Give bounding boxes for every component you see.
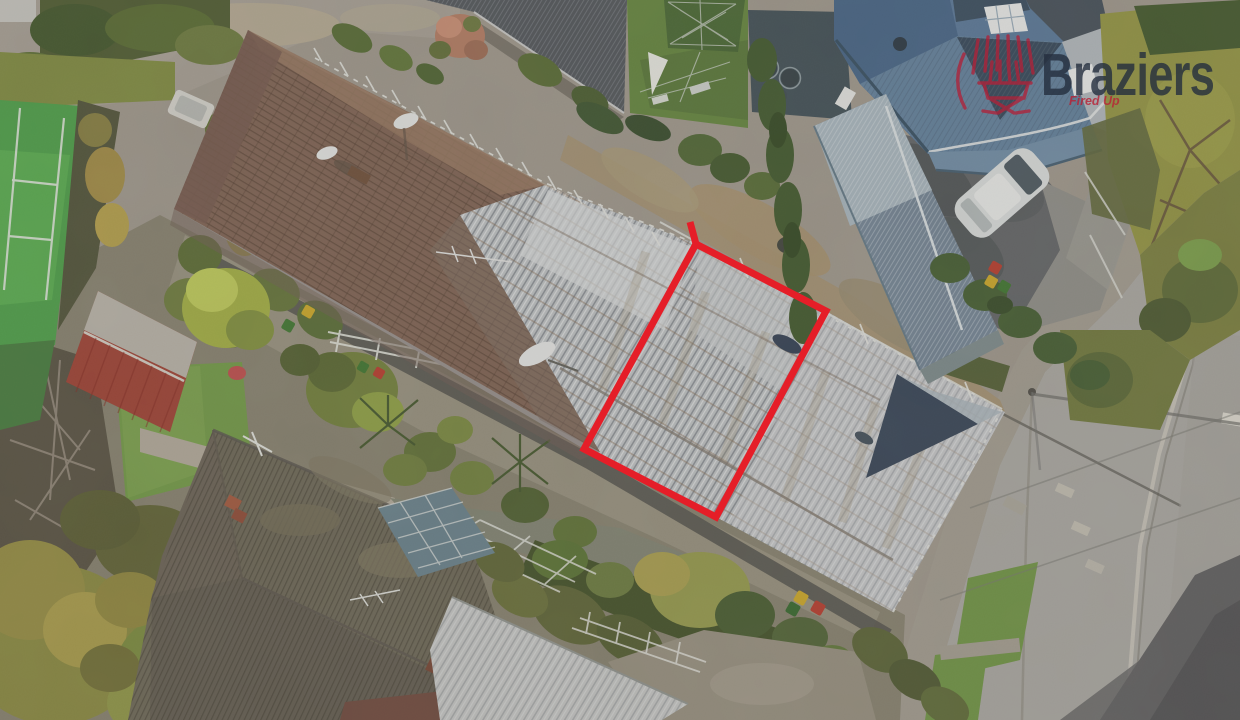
svg-text:Fired Up: Fired Up [1069,94,1120,108]
svg-text:Braziers: Braziers [1041,42,1214,108]
